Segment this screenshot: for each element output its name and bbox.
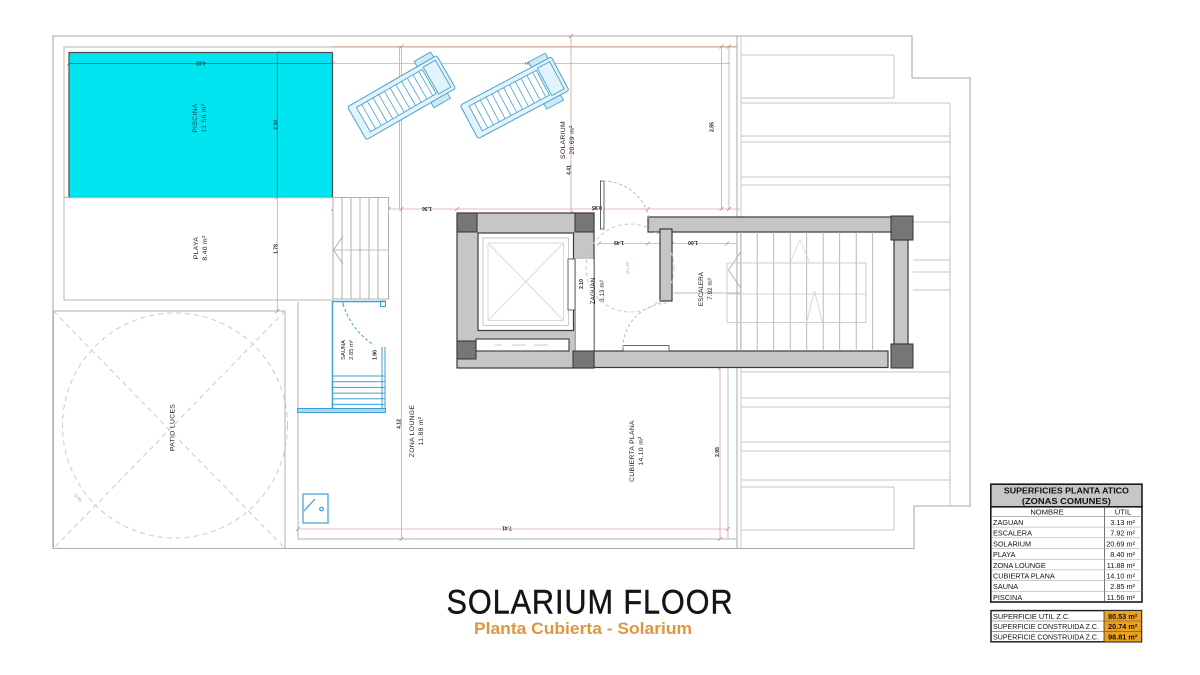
svg-text:SOLARIUM FLOOR: SOLARIUM FLOOR [447,584,734,622]
svg-text:CUBIERTA PLANA: CUBIERTA PLANA [993,572,1055,581]
svg-text:0.95: 0.95 [592,204,602,210]
svg-text:7.92 m²: 7.92 m² [707,278,714,300]
svg-text:PLAYA: PLAYA [193,237,200,260]
svg-text:NOMBRE: NOMBRE [1030,508,1063,517]
svg-text:SUPERFICIE CONSTRUIDA Z.C.: SUPERFICIE CONSTRUIDA Z.C. [993,633,1099,642]
svg-text:11.56 m²: 11.56 m² [1107,593,1136,602]
svg-text:PISCINA: PISCINA [192,103,199,132]
svg-text:2.10: 2.10 [579,279,585,289]
svg-text:11.56 m²: 11.56 m² [201,103,208,132]
svg-text:8.40 m²: 8.40 m² [1110,550,1135,559]
svg-text:20.69 m²: 20.69 m² [1106,539,1135,548]
svg-text:(ZONAS COMUNES): (ZONAS COMUNES) [1022,496,1111,506]
svg-text:1.78: 1.78 [274,244,280,254]
svg-text:CUBIERTA PLANA: CUBIERTA PLANA [629,420,636,482]
svg-text:20.74 m²: 20.74 m² [1108,622,1138,631]
svg-text:3.13 m²: 3.13 m² [1110,518,1135,527]
svg-text:ZONA LOUNGE: ZONA LOUNGE [993,561,1046,570]
svg-text:31: 31 [524,61,529,66]
svg-text:SUPERFICIES PLANTA ATICO: SUPERFICIES PLANTA ATICO [1004,486,1129,496]
svg-text:2.85: 2.85 [710,122,716,132]
svg-text:PLAYA: PLAYA [993,550,1016,559]
svg-text:-5.05: -5.05 [72,492,83,503]
svg-text:Ø1.50: Ø1.50 [625,261,630,274]
svg-text:2.95: 2.95 [715,447,721,457]
svg-text:14.10 m²: 14.10 m² [1106,572,1135,581]
svg-text:ÚTIL: ÚTIL [1115,508,1131,517]
svg-text:80.53 m²: 80.53 m² [1108,612,1138,621]
svg-text:SOLARIUM: SOLARIUM [993,539,1031,548]
svg-text:4.12: 4.12 [397,419,403,429]
svg-text:Planta Cubierta - Solarium: Planta Cubierta - Solarium [474,620,692,638]
svg-text:PISCINA: PISCINA [993,593,1022,602]
svg-text:11.88 m²: 11.88 m² [418,416,425,445]
svg-text:ESCALERA: ESCALERA [993,529,1032,538]
svg-text:1.36: 1.36 [422,205,432,211]
svg-text:20.69 m²: 20.69 m² [569,125,576,155]
svg-text:ESCALERA: ESCALERA [698,271,705,306]
svg-text:2.30: 2.30 [274,120,280,130]
svg-text:1.49: 1.49 [614,239,624,245]
svg-text:ZAGUAN: ZAGUAN [993,518,1023,527]
svg-text:SOLARIUM: SOLARIUM [560,121,567,159]
svg-text:SUPERFICIE CONSTRUIDA Z.C.: SUPERFICIE CONSTRUIDA Z.C. [993,622,1099,631]
svg-text:4.41: 4.41 [567,165,573,175]
svg-text:2.85 m²: 2.85 m² [1110,582,1135,591]
svg-text:1.00: 1.00 [688,239,698,245]
svg-text:ZONA LOUNGE: ZONA LOUNGE [409,405,416,458]
svg-text:4.82: 4.82 [196,59,206,65]
svg-text:7.92 m²: 7.92 m² [1110,529,1135,538]
svg-text:SAUNA: SAUNA [341,340,347,360]
svg-text:PATIO LUCES: PATIO LUCES [170,404,177,451]
svg-text:98.81 m²: 98.81 m² [1108,633,1138,642]
svg-text:SAUNA: SAUNA [993,582,1018,591]
svg-text:7.41: 7.41 [502,525,512,531]
svg-text:3.13 m²: 3.13 m² [599,280,606,302]
svg-text:14.10 m²: 14.10 m² [638,436,645,466]
svg-text:SUPERFICIE UTIL Z.C.: SUPERFICIE UTIL Z.C. [993,612,1070,621]
svg-text:ZAGUAN: ZAGUAN [590,277,597,304]
svg-text:11.88 m²: 11.88 m² [1107,561,1136,570]
svg-text:8.40 m²: 8.40 m² [202,235,209,261]
svg-text:1.90: 1.90 [373,350,379,360]
svg-text:2.85 m²: 2.85 m² [349,340,355,360]
